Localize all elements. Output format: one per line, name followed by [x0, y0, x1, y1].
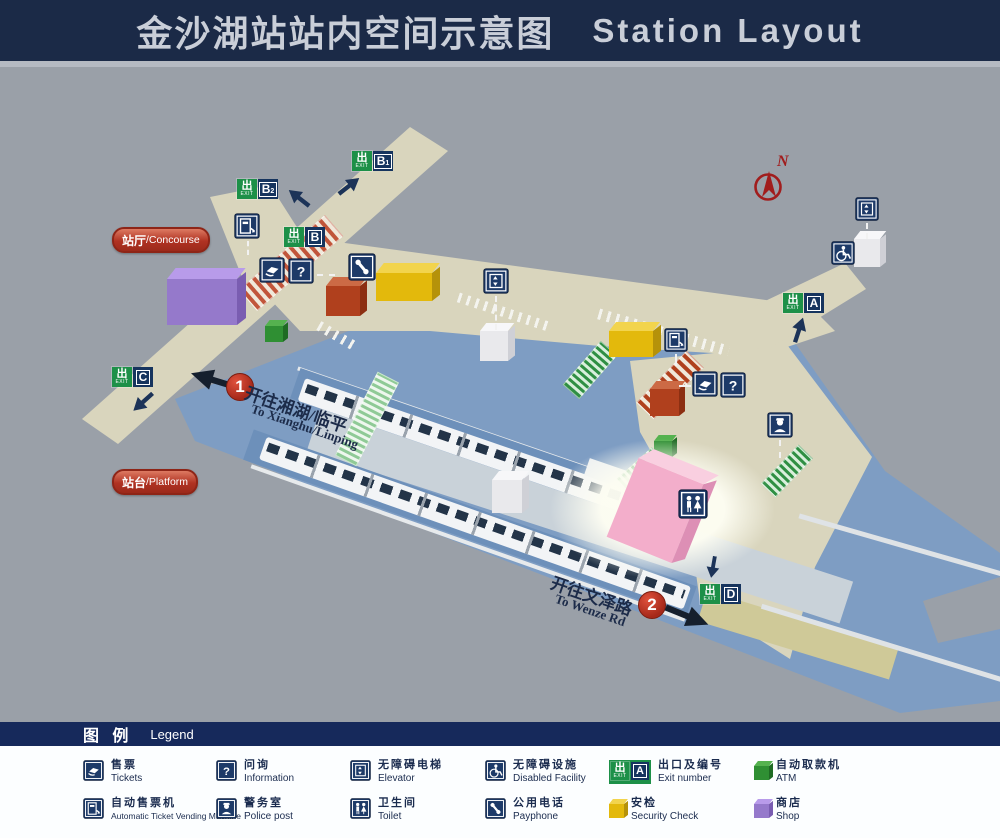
- elevator-box-right: [854, 239, 880, 267]
- header: 金沙湖站站内空间示意图 Station Layout: [0, 0, 1000, 61]
- connector-dash: [317, 274, 335, 276]
- exit-icon: 出EXIT: [783, 293, 803, 313]
- tickets-icon: [83, 760, 104, 781]
- legend-body: 售票Tickets 问询Information 无障碍电梯Elevator 无障…: [0, 746, 1000, 838]
- information-icon: [720, 372, 746, 398]
- legend-item: 警务室Police post: [216, 798, 293, 822]
- payphone-icon: [485, 798, 506, 819]
- tickets-icon: [692, 371, 718, 397]
- elevator-icon: [855, 197, 879, 221]
- connector-dash: [675, 354, 677, 366]
- ticket-vending-machine-icon: [234, 213, 260, 239]
- ticket-vending-machine-icon: [83, 798, 104, 819]
- legend-item: 无障碍电梯Elevator: [350, 760, 443, 784]
- police-post-icon: [767, 412, 793, 438]
- station-layout-page: 金沙湖站站内空间示意图 Station Layout: [0, 0, 1000, 838]
- toilet-icon: [678, 489, 708, 519]
- legend-title-en: Legend: [150, 727, 193, 742]
- legend-item: 卫生间Toilet: [350, 798, 417, 822]
- payphone-icon: [348, 253, 376, 281]
- legend-item: 无障碍设施Disabled Facility: [485, 760, 586, 784]
- legend-item: 自动取款机ATM: [754, 760, 841, 784]
- exit-sign-d: 出EXIT D: [700, 584, 741, 604]
- north-compass: N: [750, 151, 796, 205]
- exit-sign-a: 出EXIT A: [783, 293, 824, 313]
- elevator-icon: [350, 760, 371, 781]
- elevator-icon: [483, 268, 509, 294]
- exit-icon: 出EXIT: [352, 151, 372, 171]
- atm-box-left: [265, 326, 283, 342]
- shop-cube-icon: [754, 804, 769, 818]
- exit-icon: 出EXIT: [700, 584, 720, 604]
- elevator-box-platform: [492, 480, 522, 513]
- legend-item: 安检Security Check: [609, 798, 698, 822]
- information-icon: [288, 258, 314, 284]
- shop-box: [167, 279, 237, 325]
- station-map: 出EXIT B1 出EXIT B2 出EXIT B 出EXIT C 出EXIT …: [0, 67, 1000, 722]
- exit-sign-b: 出EXIT B: [284, 227, 325, 247]
- connector-dash: [779, 440, 781, 458]
- ticket-office-box-right: [650, 389, 679, 416]
- security-check-box-right: [609, 331, 653, 357]
- connector-dash: [866, 223, 868, 239]
- legend-header: 图 例 Legend: [0, 722, 1000, 746]
- connector-dash: [247, 241, 249, 255]
- legend-item: 问询Information: [216, 760, 294, 784]
- ticket-vending-machine-icon: [664, 328, 688, 352]
- page-title-en: Station Layout: [592, 12, 863, 50]
- walk-arrow: [283, 183, 315, 213]
- page-title-zh: 金沙湖站站内空间示意图: [136, 5, 554, 57]
- connector-dash: [679, 385, 691, 387]
- exit-sign-b2: 出EXIT B2: [237, 179, 278, 199]
- legend-item: 出EXIT A 出口及编号Exit number: [609, 760, 723, 784]
- legend-item: 商店Shop: [754, 798, 802, 822]
- connector-dash: [495, 296, 497, 330]
- exit-number-icon: 出EXIT A: [609, 760, 651, 784]
- platform-label: 站台/Platform: [112, 469, 198, 495]
- police-post-icon: [216, 798, 237, 819]
- security-check-box-left: [376, 273, 432, 301]
- exit-icon: 出EXIT: [284, 227, 304, 247]
- elevator-box-concourse: [480, 331, 508, 361]
- disabled-facility-icon: [485, 760, 506, 781]
- compass-n-label: N: [776, 153, 790, 170]
- legend-item: 售票Tickets: [83, 760, 142, 784]
- exit-sign-b1: 出EXIT B1: [352, 151, 393, 171]
- exit-icon: 出EXIT: [237, 179, 257, 199]
- exit-icon: 出EXIT: [112, 367, 132, 387]
- exit-sign-c: 出EXIT C: [112, 367, 153, 387]
- ticket-office-box-left: [326, 286, 360, 316]
- information-icon: [216, 760, 237, 781]
- legend-item: 公用电话Payphone: [485, 798, 565, 822]
- line-number-badge: 2: [638, 591, 666, 619]
- atm-cube-icon: [754, 766, 769, 780]
- disabled-facility-icon: [831, 241, 855, 265]
- legend-title-zh: 图 例: [83, 722, 128, 746]
- concourse-label: 站厅/Concourse: [112, 227, 210, 253]
- toilet-icon: [350, 798, 371, 819]
- tickets-icon: [259, 257, 285, 283]
- security-cube-icon: [609, 804, 624, 818]
